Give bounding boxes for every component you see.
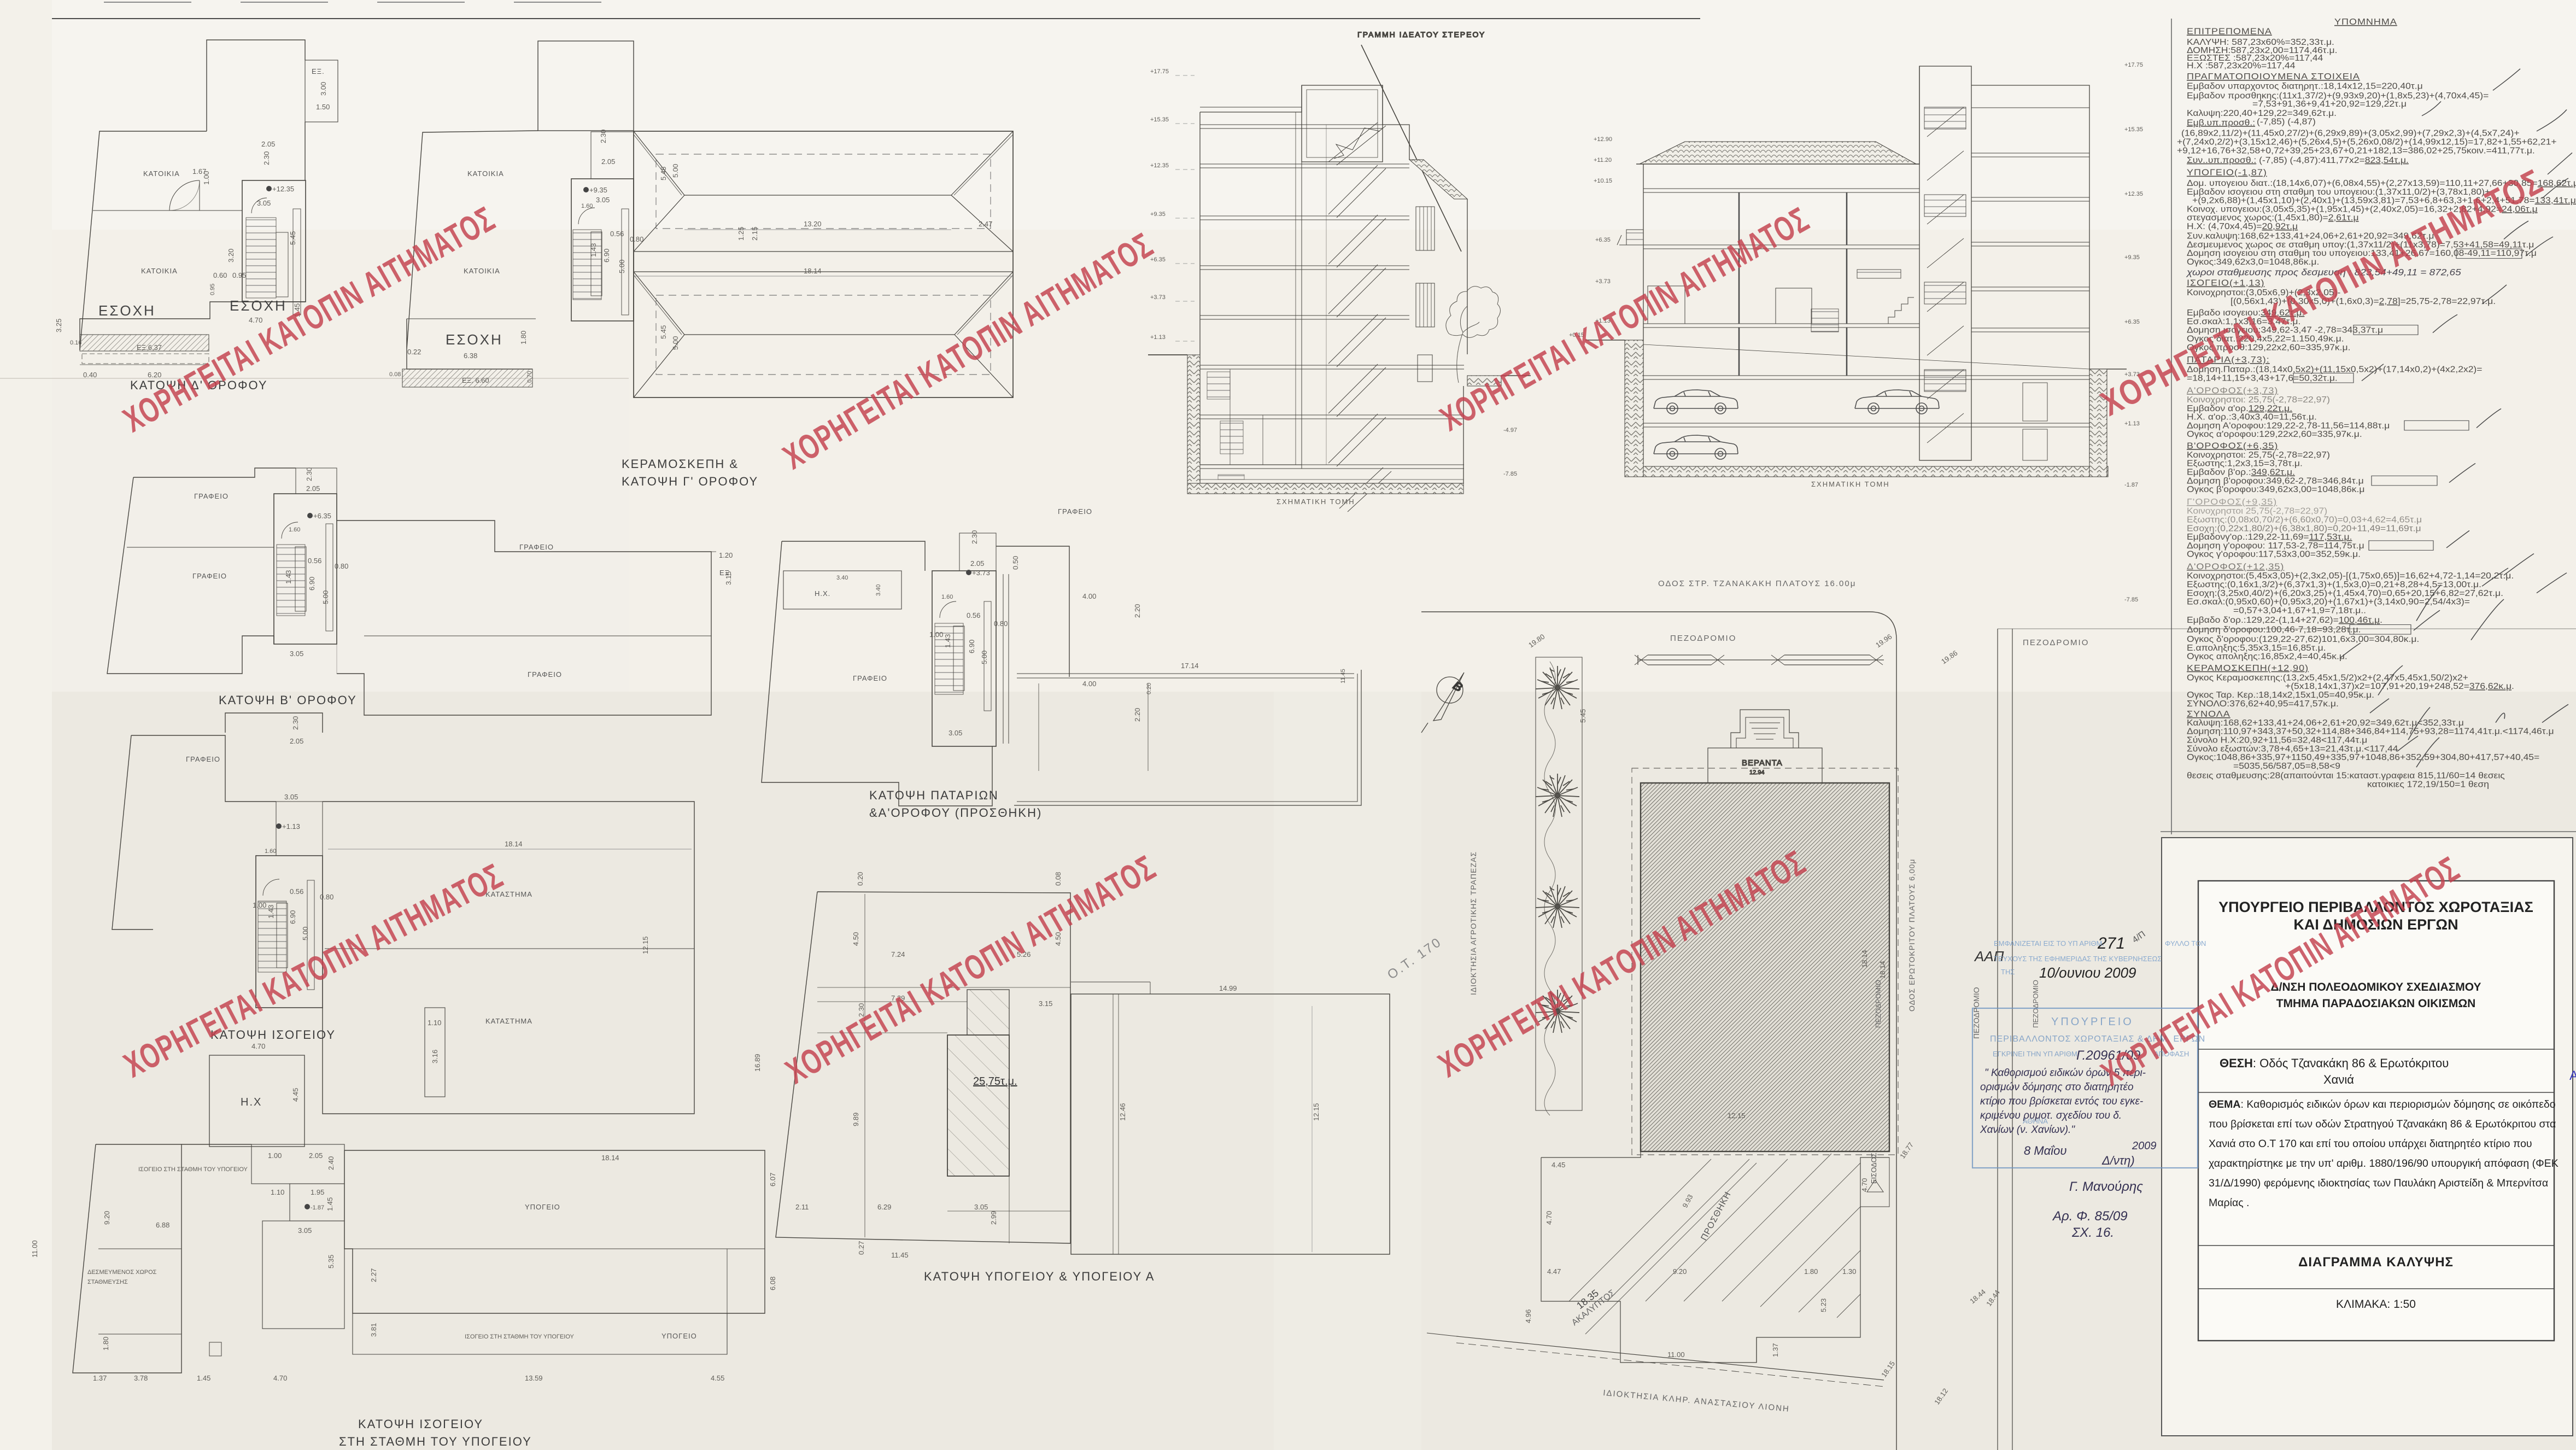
svg-text:ΕΣΟΧΗ: ΕΣΟΧΗ — [98, 302, 156, 319]
svg-text:Εξωστης:1,2x3,15=3,78τ.μ.: Εξωστης:1,2x3,15=3,78τ.μ. — [2187, 459, 2303, 469]
svg-text:ΕΜΦΑΝΙΖΕΤΑΙ ΕΙΣ ΤΟ ΥΠ ΑΡΙΘΜ.: ΕΜΦΑΝΙΖΕΤΑΙ ΕΙΣ ΤΟ ΥΠ ΑΡΙΘΜ. — [1994, 939, 2104, 948]
svg-text:4.00: 4.00 — [1082, 592, 1096, 600]
svg-text:1.00: 1.00 — [268, 1151, 282, 1160]
svg-text:+17.75: +17.75 — [1150, 68, 1169, 75]
svg-text:5.00: 5.00 — [980, 651, 988, 664]
svg-text:ΕΙΣΟΔΟΣ: ΕΙΣΟΔΟΣ — [1870, 1153, 1878, 1184]
svg-text:Εσοχη:(3,25x0,40/2)+(6,20x3,25: Εσοχη:(3,25x0,40/2)+(6,20x3,25)+(1,45x4,… — [2187, 589, 2503, 598]
svg-text:11.00: 11.00 — [31, 1240, 39, 1258]
svg-text:2.05: 2.05 — [261, 140, 275, 148]
svg-text:18.14: 18.14 — [804, 267, 822, 275]
svg-text:6.90: 6.90 — [289, 910, 297, 924]
svg-text:ΟΔΟΣ ΕΡΩΤΟΚΡΙΤΟΥ ΠΛΑΤΟΥΣ 6,: ΟΔΟΣ ΕΡΩΤΟΚΡΙΤΟΥ ΠΛΑΤΟΥΣ 6,00μ — [1907, 859, 1916, 1012]
svg-text:1.37: 1.37 — [1771, 1343, 1779, 1357]
svg-text:ΤΗΣ: ΤΗΣ — [2001, 968, 2015, 976]
svg-text:+9.35: +9.35 — [2124, 254, 2140, 261]
svg-text:1.37: 1.37 — [93, 1374, 107, 1382]
svg-text:Κοινοχρηστοι 25,75(-2,78=22,97: Κοινοχρηστοι 25,75(-2,78=22,97) — [2187, 507, 2327, 516]
svg-text:11.00: 11.00 — [1667, 1350, 1685, 1359]
svg-text:1.30: 1.30 — [1842, 1267, 1856, 1276]
svg-text:5.00: 5.00 — [671, 164, 680, 178]
svg-text:2.30: 2.30 — [970, 530, 979, 544]
svg-text:-7.85: -7.85 — [1503, 471, 1517, 477]
svg-text:+(7,24x0,2/2)+(3,15x12,46)+(5,: +(7,24x0,2/2)+(3,15x12,46)+(5,26x4,5)+(5… — [2177, 137, 2557, 147]
svg-text:στεγασμενος χωρος:(1,45x1,80): στεγασμενος χωρος:(1,45x1,80)=2,61τ.μ — [2187, 213, 2359, 223]
svg-text:3.81: 3.81 — [370, 1323, 378, 1337]
svg-text:ΦΥΛΛΟ ΤΟΝ: ΦΥΛΛΟ ΤΟΝ — [2165, 939, 2206, 948]
svg-text:ΓΡΑΦΕΙΟ: ΓΡΑΦΕΙΟ — [528, 670, 562, 679]
svg-text:-7.85: -7.85 — [2124, 597, 2138, 603]
svg-text:2.20: 2.20 — [1133, 708, 1141, 722]
svg-text:ΣΧΗΜΑΤΙΚΗ ΤΟΜΗ: ΣΧΗΜΑΤΙΚΗ ΤΟΜΗ — [1811, 480, 1890, 488]
svg-text:1.95: 1.95 — [311, 1188, 324, 1196]
svg-text:θεσεις σταθμευσης:28(απαιτούν: θεσεις σταθμευσης:28(απαιτούνται 15:κατα… — [2187, 771, 2505, 780]
svg-text:ΓΡΑΜΜΗ ΙΔΕΑΤΟΥ ΣΤΕΡΕΟΥ: ΓΡΑΜΜΗ ΙΔΕΑΤΟΥ ΣΤΕΡΕΟΥ — [1357, 30, 1485, 39]
svg-text:4.47: 4.47 — [1547, 1267, 1561, 1276]
svg-text:Γ'ΟΡΟΦΟΣ(+9,35): Γ'ΟΡΟΦΟΣ(+9,35) — [2187, 497, 2277, 507]
svg-text:1.60: 1.60 — [581, 203, 593, 209]
svg-text:Χανιά στο Ο.Τ 170 και επί του: Χανιά στο Ο.Τ 170 και επί του οποίου υπά… — [2209, 1138, 2532, 1150]
svg-text:ΕΞ.: ΕΞ. — [719, 569, 733, 577]
svg-text:ΠΕΖΟΔΡΟΜΙΟ: ΠΕΖΟΔΡΟΜΙΟ — [2023, 638, 2089, 647]
svg-text:ΥΠΟΜΝΗΜΑ: ΥΠΟΜΝΗΜΑ — [2334, 17, 2397, 27]
svg-text:ΚΑΤΟΨΗ Β' ΟΡΟΦΟΥ: ΚΑΤΟΨΗ Β' ΟΡΟΦΟΥ — [219, 693, 357, 707]
svg-text:Κοινοχρηστοι:(5,45x3,05)+(2,3x: Κοινοχρηστοι:(5,45x3,05)+(2,3x2,05)-[(1,… — [2187, 571, 2514, 581]
svg-text:9.20: 9.20 — [1673, 1267, 1687, 1276]
svg-text:ΕΣΟΧΗ: ΕΣΟΧΗ — [446, 331, 503, 348]
svg-text:5.45: 5.45 — [289, 231, 297, 245]
svg-text:3.16: 3.16 — [431, 1050, 439, 1063]
svg-text:5.00: 5.00 — [321, 590, 330, 604]
svg-text:ΠΕΖΟΔΡΟΜΙΟ: ΠΕΖΟΔΡΟΜΙΟ — [1670, 634, 1736, 643]
svg-text:+15.35: +15.35 — [1150, 116, 1169, 123]
svg-text:Α'ΟΡΟΦΟΣ(+3,73): Α'ΟΡΟΦΟΣ(+3,73) — [2187, 385, 2278, 395]
svg-text:-4.97: -4.97 — [1503, 427, 1517, 434]
svg-text:2009: 2009 — [2132, 1140, 2157, 1152]
svg-text:1.60: 1.60 — [289, 527, 300, 533]
svg-text:25,75τ.μ.: 25,75τ.μ. — [973, 1075, 1017, 1087]
svg-text:12.46: 12.46 — [1119, 1103, 1127, 1121]
svg-text:ΥΠΟΓΕΙΟ: ΥΠΟΓΕΙΟ — [661, 1332, 697, 1340]
svg-text:0.95: 0.95 — [232, 271, 246, 279]
svg-text:1.20: 1.20 — [719, 551, 733, 559]
svg-text:Δ/ΝΣΗ ΠΟΛΕΟΔΟΜΙΚΟΥ ΣΧΕΔΙΑΣΜΟΥ: Δ/ΝΣΗ ΠΟΛΕΟΔΟΜΙΚΟΥ ΣΧΕΔΙΑΣΜΟΥ — [2271, 981, 2481, 993]
svg-text:ΓΡΑΦΕΙΟ: ΓΡΑΦΕΙΟ — [192, 572, 227, 580]
svg-text:+12.90: +12.90 — [1594, 136, 1612, 143]
svg-text:ΕΞ.: ΕΞ. — [312, 67, 325, 75]
svg-text:5.45: 5.45 — [1579, 709, 1587, 723]
svg-text:3.40: 3.40 — [836, 575, 848, 581]
svg-text:Εξωστης:(0,08x0,70/2)+(6,60x0,: Εξωστης:(0,08x0,70/2)+(6,60x0,70)=0,03+4… — [2187, 515, 2422, 524]
svg-text:ΣΥΝΟΛΑ: ΣΥΝΟΛΑ — [2187, 709, 2230, 719]
svg-text:Κοινοχρηστοι: 25,75(-2,78=22,9: Κοινοχρηστοι: 25,75(-2,78=22,97) — [2187, 395, 2330, 405]
svg-text:Ογκος δ'οροφου:(129,22-27,62): Ογκος δ'οροφου:(129,22-27,62)101,6x3,00=… — [2187, 635, 2419, 644]
svg-text:+9,12+16,76+32,58+0,72+39,25+2: +9,12+16,76+32,58+0,72+39,25+23,67+0,21+… — [2177, 146, 2535, 155]
svg-text:ΕΠΙΤΡΕΠΟΜΕΝΑ: ΕΠΙΤΡΕΠΟΜΕΝΑ — [2187, 27, 2272, 37]
svg-text:+17.75: +17.75 — [2124, 62, 2143, 68]
svg-text:1.25: 1.25 — [737, 227, 745, 241]
svg-text:+15.35: +15.35 — [2124, 126, 2143, 133]
svg-text:+3.73: +3.73 — [1150, 294, 1166, 301]
svg-text:ΚΑΤΟΙΚΙΑ: ΚΑΤΟΙΚΙΑ — [141, 267, 178, 275]
svg-text:3.05: 3.05 — [949, 729, 962, 737]
svg-text:11.45: 11.45 — [1340, 669, 1346, 683]
svg-text:2.20: 2.20 — [1133, 604, 1141, 618]
svg-text:0.80: 0.80 — [994, 619, 1008, 628]
svg-text:4.45: 4.45 — [1552, 1161, 1565, 1169]
svg-text:Εμβαδον ισογειου στη σταθμη το: Εμβαδον ισογειου στη σταθμη του υπογειου… — [2187, 188, 2490, 197]
svg-text:+6.35: +6.35 — [313, 512, 331, 520]
svg-text:31/Δ/1990) φερόμενης ιδιοκτησί: 31/Δ/1990) φερόμενης ιδιοκτησίας των Παυ… — [2209, 1177, 2548, 1189]
svg-text:ΔΕΣΜΕΥΜΕΝΟΣ ΧΩΡΟΣ: ΔΕΣΜΕΥΜΕΝΟΣ ΧΩΡΟΣ — [87, 1269, 157, 1276]
svg-text:2.47: 2.47 — [979, 220, 992, 228]
svg-text:3.15: 3.15 — [1039, 999, 1052, 1008]
svg-text:1.00: 1.00 — [253, 901, 266, 909]
svg-text:+9.35: +9.35 — [1150, 211, 1166, 218]
svg-text:Καλυψη:168,62+133,41+24,06+2,6: Καλυψη:168,62+133,41+24,06+2,61+20,92=34… — [2187, 718, 2464, 728]
svg-text:ΓΡΑΦΕΙΟ: ΓΡΑΦΕΙΟ — [186, 755, 220, 763]
svg-text:9.89: 9.89 — [852, 1113, 860, 1126]
svg-text:2.30: 2.30 — [262, 151, 271, 165]
svg-text:-1.87: -1.87 — [311, 1205, 324, 1211]
svg-text:13.59: 13.59 — [525, 1374, 543, 1382]
svg-text:+3.73: +3.73 — [1595, 278, 1611, 285]
svg-text:ΠΕΖΟΔΡΟΜΙΟ: ΠΕΖΟΔΡΟΜΙΟ — [2031, 980, 2040, 1028]
svg-text:+12.35: +12.35 — [1150, 162, 1169, 169]
svg-text:ΘΕΜΑ: Καθορισμός ειδικών όρων: ΘΕΜΑ: Καθορισμός ειδικών όρων και περιορ… — [2209, 1098, 2556, 1110]
svg-text:Δομηση δ'οροφου:100,46-7,18=9: Δομηση δ'οροφου:100,46-7,18=93,28τ.μ. — [2187, 625, 2361, 634]
svg-text:ΥΠΟΓΕΙΟ: ΥΠΟΓΕΙΟ — [525, 1203, 560, 1211]
svg-text:+12.35: +12.35 — [2124, 191, 2143, 197]
svg-text:ΘΕΣΗ: Οδός Τζανακάκη 86 &: ΘΕΣΗ: Οδός Τζανακάκη 86 & Ερωτόκριτου — [2220, 1056, 2449, 1070]
svg-text:+1.13: +1.13 — [2124, 420, 2140, 427]
svg-text:0.16: 0.16 — [70, 340, 81, 346]
svg-text:Εμβαδον υπαρχοντος διατηρητ.:1: Εμβαδον υπαρχοντος διατηρητ.:18,14x12,15… — [2187, 82, 2423, 91]
svg-text:1.45: 1.45 — [326, 1197, 334, 1211]
svg-text:0.56: 0.56 — [290, 887, 303, 896]
svg-text:ΠΡΑΓΜΑΤΟΠΟΙΟΥΜΕΝΑ ΣΤΟΙΧΕΙΑ: ΠΡΑΓΜΑΤΟΠΟΙΟΥΜΕΝΑ ΣΤΟΙΧΕΙΑ — [2187, 72, 2360, 81]
svg-text:1.00: 1.00 — [929, 630, 943, 639]
svg-text:2.05: 2.05 — [290, 737, 303, 745]
svg-text:ΙΔΙΟΚΤΗΣΙΑ ΑΓΡΟΤΙΚΗΣ ΤΡΑΠΕΖΑΣ: ΙΔΙΟΚΤΗΣΙΑ ΑΓΡΟΤΙΚΗΣ ΤΡΑΠΕΖΑΣ — [1469, 851, 1478, 995]
svg-text:Εμβαδο δ'ορ.:129,22-(1,14+27,: Εμβαδο δ'ορ.:129,22-(1,14+27,62)=100,46τ… — [2187, 616, 2382, 625]
svg-text:ΚΑΤΟΨΗ ΙΣΟΓΕΙΟΥ: ΚΑΤΟΨΗ ΙΣΟΓΕΙΟΥ — [358, 1417, 483, 1431]
svg-text:0.20: 0.20 — [856, 872, 864, 886]
svg-text:Ογκος β'οροφου:349,62x3,00=10: Ογκος β'οροφου:349,62x3,00=1048,86κ.μ — [2187, 485, 2365, 494]
svg-text:Εξωστης:(0,16x1,3/2)+(6,37x1,3: Εξωστης:(0,16x1,3/2)+(6,37x1,3)+(1,5x3,0… — [2187, 580, 2481, 589]
svg-text:Χανιά: Χανιά — [2323, 1073, 2354, 1086]
svg-text:17.14: 17.14 — [1181, 662, 1199, 670]
svg-text:Δομηση β'οροφου:349,62-2,78=3: Δομηση β'οροφου:349,62-2,78=346,84τ.μ — [2187, 476, 2364, 486]
svg-text:4.70: 4.70 — [251, 1042, 265, 1050]
svg-text:Σύνολο Η.Χ:20,92+11,56=32,48<: Σύνολο Η.Χ:20,92+11,56=32,48<117,44τ.μ — [2187, 735, 2367, 745]
svg-text:ΥΠΟΓΕΙΟ(-1,87): ΥΠΟΓΕΙΟ(-1,87) — [2187, 168, 2267, 178]
svg-text:12.15: 12.15 — [641, 936, 649, 954]
svg-text:ΣΧ. 16.: ΣΧ. 16. — [2071, 1225, 2114, 1240]
svg-text:0.08: 0.08 — [1054, 872, 1062, 886]
svg-text:0.50: 0.50 — [1011, 556, 1020, 570]
svg-text:4.00: 4.00 — [1082, 680, 1096, 688]
svg-text:1.50: 1.50 — [316, 103, 330, 111]
svg-text:2.05: 2.05 — [970, 559, 984, 568]
svg-text:1.10: 1.10 — [428, 1019, 441, 1027]
svg-text:3.25: 3.25 — [55, 319, 63, 332]
svg-text:18.14: 18.14 — [1860, 950, 1869, 968]
svg-text:Καλυψη:220,40+129,22=349,62τ.μ: Καλυψη:220,40+129,22=349,62τ.μ. — [2187, 109, 2337, 118]
svg-text:6.90: 6.90 — [308, 577, 316, 590]
svg-text:1.80: 1.80 — [102, 1337, 110, 1350]
svg-text:ΔΙΑΓΡΑΜΜΑ ΚΑΛΥΨΗΣ: ΔΙΑΓΡΑΜΜΑ ΚΑΛΥΨΗΣ — [2298, 1255, 2454, 1270]
svg-text:5.45: 5.45 — [659, 167, 668, 180]
svg-text:1.43: 1.43 — [589, 243, 598, 257]
svg-text:4.70: 4.70 — [249, 316, 262, 324]
svg-text:Ογκος:349,62x3,0=1048,86κ.μ.: Ογκος:349,62x3,0=1048,86κ.μ. — [2187, 258, 2319, 267]
svg-text:ΤΕΥΧΟΥΣ ΤΗΣ ΕΦΗΜΕΡΙΔΑΣ ΤΗΣ ΚΥΒ: ΤΕΥΧΟΥΣ ΤΗΣ ΕΦΗΜΕΡΙΔΑΣ ΤΗΣ ΚΥΒΕΡΝΗΣΕΩΣ — [1994, 955, 2162, 963]
svg-text:=7,53+91,36+9,41+20,92=129,22τ: =7,53+91,36+9,41+20,92=129,22τ.μ — [2252, 100, 2407, 109]
svg-text:ΤΜΗΜΑ ΠΑΡΑΔΟΣΙΑΚΩΝ ΟΙΚΙΣΜΩΝ: ΤΜΗΜΑ ΠΑΡΑΔΟΣΙΑΚΩΝ ΟΙΚΙΣΜΩΝ — [2276, 997, 2476, 1010]
svg-text:Ογκος α'οροφου:129,22x2,60=33: Ογκος α'οροφου:129,22x2,60=335,97κ.μ. — [2187, 430, 2362, 439]
svg-text:5.00: 5.00 — [618, 260, 626, 273]
svg-text:0.40: 0.40 — [83, 371, 97, 379]
svg-text:κριμένου ρυμοτ. σχεδίου του δ.: κριμένου ρυμοτ. σχεδίου του δ. — [1980, 1110, 2122, 1121]
svg-text:0.22: 0.22 — [407, 348, 421, 356]
svg-text:10/ουνιου 2009: 10/ουνιου 2009 — [2039, 964, 2136, 981]
svg-text:+11.20: +11.20 — [1594, 157, 1612, 163]
svg-text:ΚΑΤΟΨΗ ΠΑΤΑΡΙΩΝ: ΚΑΤΟΨΗ ΠΑΤΑΡΙΩΝ — [869, 788, 999, 802]
svg-text:Η.Χ: (4,70x4,45)=20,92τ.μ: Η.Χ: (4,70x4,45)=20,92τ.μ — [2187, 222, 2298, 231]
svg-text:13.20: 13.20 — [804, 220, 822, 228]
svg-text:Δ/ντη): Δ/ντη) — [2101, 1154, 2135, 1167]
svg-text:Αρ. Φ. 85/09: Αρ. Φ. 85/09 — [2052, 1209, 2128, 1224]
svg-text:4.70: 4.70 — [1545, 1211, 1553, 1225]
svg-text:Συν..υπ.προσθ.: (-7,85) (-4,87: Συν..υπ.προσθ.: (-7,85) (-4,87):411,77x2… — [2187, 156, 2409, 165]
svg-text:ΣΥΝΟΛΟ:376,62+40,95=417,57κ.μ.: ΣΥΝΟΛΟ:376,62+40,95=417,57κ.μ. — [2187, 699, 2339, 709]
svg-text:+1.13: +1.13 — [282, 822, 300, 831]
svg-text:14.99: 14.99 — [1219, 984, 1237, 992]
svg-text:Η.Χ.: Η.Χ. — [815, 589, 830, 598]
svg-text:3.05: 3.05 — [974, 1203, 988, 1211]
svg-text:Ογκος γ'οροφου:117,53x3,00=35: Ογκος γ'οροφου:117,53x3,00=352,59κ.μ. — [2187, 550, 2361, 559]
svg-text:4.45: 4.45 — [291, 1088, 300, 1102]
svg-text:ΟΔΟΣ ΣΤΡ. ΤΖΑΝΑΚΑΚΗ ΠΛΑΤΟΥΣ: ΟΔΟΣ ΣΤΡ. ΤΖΑΝΑΚΑΚΗ ΠΛΑΤΟΥΣ 16.00μ — [1658, 579, 1856, 588]
svg-text:Ογκος αποληξης:16,85x2,4=40,4: Ογκος αποληξης:16,85x2,4=40,45κ.μ. — [2187, 652, 2347, 662]
svg-text:3.05: 3.05 — [596, 196, 610, 204]
svg-text:0.27: 0.27 — [857, 1241, 865, 1255]
svg-text:ΙΣΟΓΕΙΟ(+1,13): ΙΣΟΓΕΙΟ(+1,13) — [2187, 278, 2264, 288]
svg-text:ΙΣΟΓΕΙΟ ΣΤΗ ΣΤΑΘΜΗ ΤΟΥ ΥΠΟΓΕΙΟ: ΙΣΟΓΕΙΟ ΣΤΗ ΣΤΑΘΜΗ ΤΟΥ ΥΠΟΓΕΙΟΥ — [138, 1166, 248, 1173]
svg-text:2.05: 2.05 — [601, 157, 615, 166]
svg-text:ΓΡΑΦΕΙΟ: ΓΡΑΦΕΙΟ — [1058, 507, 1092, 516]
svg-text:ΣΤΗ ΣΤΑΘΜΗ ΤΟΥ ΥΠΟΓΕΙΟΥ: ΣΤΗ ΣΤΑΘΜΗ ΤΟΥ ΥΠΟΓΕΙΟΥ — [339, 1435, 532, 1448]
svg-text:+12.35: +12.35 — [272, 185, 294, 193]
svg-text:ΥΠΟΥΡΓΕΙΟ: ΥΠΟΥΡΓΕΙΟ — [2051, 1016, 2134, 1028]
svg-text:ΣΤΑΘΜΕΥΣΗΣ: ΣΤΑΘΜΕΥΣΗΣ — [87, 1279, 128, 1285]
svg-text:Εμβαδον α'ορ.129,22τ.μ.: Εμβαδον α'ορ.129,22τ.μ. — [2187, 404, 2292, 413]
svg-text:12.15: 12.15 — [1728, 1112, 1746, 1120]
svg-text:ΠΕΖΟΔΡΟΜΙΟ: ΠΕΖΟΔΡΟΜΙΟ — [1874, 980, 1882, 1028]
svg-text:ΚΛΙΜΑΚΑ: 1:50: ΚΛΙΜΑΚΑ: 1:50 — [2336, 1298, 2416, 1311]
svg-text:ΓΡΑΦΕΙΟ: ΓΡΑΦΕΙΟ — [853, 674, 887, 682]
svg-text:ΚΕΡΑΜΟΣΚΕΠΗ &: ΚΕΡΑΜΟΣΚΕΠΗ & — [622, 457, 739, 471]
svg-text:0.95: 0.95 — [209, 284, 216, 295]
svg-text:=0,57+3,04+1,67+1,9=7,18τ.μ..: =0,57+3,04+1,67+1,9=7,18τ.μ.. — [2233, 606, 2366, 615]
svg-text:0.80: 0.80 — [320, 893, 333, 901]
svg-text:+3.73: +3.73 — [972, 569, 990, 577]
svg-text:ΓΡΑΦΕΙΟ: ΓΡΑΦΕΙΟ — [194, 492, 229, 500]
svg-text:9.20: 9.20 — [103, 1211, 111, 1225]
svg-text:Ογκος Κεραμοσκεπης:(13,2x5,45: Ογκος Κεραμοσκεπης:(13,2x5,45x1,5/2)x2+(… — [2187, 673, 2468, 682]
svg-text:Χανίων (ν. Χανίων).": Χανίων (ν. Χανίων)." — [1980, 1124, 2075, 1136]
svg-text:Εσοχη:(0,22x1,80/2)+(6,38x1,80: Εσοχη:(0,22x1,80/2)+(6,38x1,80)=0,20+11,… — [2187, 524, 2421, 533]
svg-text:0.80: 0.80 — [335, 562, 348, 570]
svg-text:ΓΡΑΦΕΙΟ: ΓΡΑΦΕΙΟ — [519, 543, 554, 551]
svg-text:1.43: 1.43 — [284, 570, 292, 584]
svg-text:16.89: 16.89 — [753, 1054, 762, 1072]
svg-text:+(5x18,14x1,37)x2=107,91+20,19: +(5x18,14x1,37)x2=107,91+20,19+248,52=37… — [2285, 682, 2514, 691]
svg-text:ΕΞ.6.37: ΕΞ.6.37 — [137, 343, 162, 352]
svg-text:κτίριο που βρίσκεται εντός του: κτίριο που βρίσκεται εντός του εγκε- — [1980, 1096, 2143, 1107]
svg-text:2.40: 2.40 — [327, 1156, 335, 1170]
svg-text:1.00: 1.00 — [202, 171, 210, 185]
svg-text:1.80: 1.80 — [519, 331, 528, 344]
svg-text:=5035,56/587,05=8,58<9: =5035,56/587,05=8,58<9 — [2233, 762, 2340, 771]
svg-text:1.45: 1.45 — [197, 1374, 210, 1382]
svg-text:Η.Χ. α'ορ.:3,40x3,40=11,56τ.μ: Η.Χ. α'ορ.:3,40x3,40=11,56τ.μ. — [2187, 413, 2317, 422]
svg-text:+9.35: +9.35 — [589, 186, 607, 194]
svg-text:12.94: 12.94 — [1749, 769, 1765, 776]
svg-text:2.30: 2.30 — [291, 716, 300, 730]
svg-text:5.45: 5.45 — [659, 325, 668, 339]
svg-text:11.45: 11.45 — [891, 1251, 909, 1259]
svg-text:2.30: 2.30 — [305, 467, 313, 481]
svg-text:Κοινοχρηστοι: 25,75(-2,78=22,9: Κοινοχρηστοι: 25,75(-2,78=22,97) — [2187, 451, 2330, 460]
svg-text:ΕΓΚΡΙΝΕΙ ΤΗΝ ΥΠ ΑΡΙΘΜ.: ΕΓΚΡΙΝΕΙ ΤΗΝ ΥΠ ΑΡΙΘΜ. — [1993, 1050, 2079, 1058]
svg-text:0.60: 0.60 — [213, 271, 227, 279]
svg-text:Δομηση.Παταρ.:(18,14x0,5x2)+(1: Δομηση.Παταρ.:(18,14x0,5x2)+(11,15x0,5x2… — [2187, 365, 2482, 375]
svg-text:Ε.αποληξης:5,35x3,15=16,85τ.μ.: Ε.αποληξης:5,35x3,15=16,85τ.μ. — [2187, 644, 2326, 653]
svg-text:0.80: 0.80 — [630, 235, 643, 243]
svg-text:0.56: 0.56 — [308, 557, 321, 565]
svg-text:ΒΕΡΑΝΤΑ: ΒΕΡΑΝΤΑ — [1742, 758, 1783, 768]
svg-text:&Α'ΟΡΟΦΟΥ (ΠΡΟΣΘΗΚΗ): &Α'ΟΡΟΦΟΥ (ΠΡΟΣΘΗΚΗ) — [869, 806, 1042, 820]
svg-text:18.14: 18.14 — [1878, 961, 1887, 979]
svg-text:Δεσμευμενος χωρος σε σταθμη: Δεσμευμενος χωρος σε σταθμη υπογ:(1,37x1… — [2187, 240, 2534, 249]
svg-text:3.05: 3.05 — [298, 1226, 312, 1235]
svg-text:0.20: 0.20 — [1146, 683, 1152, 694]
svg-text:Ογκος:1048,86+335,97+1150,49+3: Ογκος:1048,86+335,97+1150,49+335,97+1048… — [2187, 753, 2539, 762]
svg-text:2.05: 2.05 — [309, 1151, 323, 1160]
svg-text:12.15: 12.15 — [1312, 1103, 1320, 1121]
svg-text:Δομηση γ'οροφου: 117,53-2,78: Δομηση γ'οροφου: 117,53-2,78=114,75τ.μ — [2187, 541, 2364, 551]
svg-text:18.14: 18.14 — [505, 840, 523, 848]
svg-text:0.70: 0.70 — [526, 371, 533, 383]
svg-text:Μαρίας .: Μαρίας . — [2209, 1197, 2249, 1209]
svg-text:Η.Χ :587,23x20%=117,44: Η.Χ :587,23x20%=117,44 — [2187, 61, 2295, 71]
svg-text:=18,14+11,15+3,43+17,6=50,32τ.: =18,14+11,15+3,43+17,6=50,32τ.μ. — [2187, 373, 2338, 383]
svg-text:6.08: 6.08 — [769, 1277, 777, 1290]
svg-text:8 Μαΐου: 8 Μαΐου — [2024, 1144, 2066, 1157]
svg-text:ΚΑΤΟΨΗ Γ' ΟΡΟΦΟΥ: ΚΑΤΟΨΗ Γ' ΟΡΟΦΟΥ — [622, 475, 758, 488]
svg-text:6.07: 6.07 — [769, 1173, 777, 1186]
svg-text:Α: Α — [2569, 1068, 2576, 1083]
svg-text:1.43: 1.43 — [267, 905, 275, 919]
svg-text:2.99: 2.99 — [990, 1211, 998, 1225]
svg-text:Εμβαδον β'ορ.:349,62τ.μ.: Εμβαδον β'ορ.:349,62τ.μ. — [2187, 468, 2295, 477]
svg-text:Δομηση Α'οροφου:129,22-2,78-1: Δομηση Α'οροφου:129,22-2,78-11,56=114,88… — [2187, 421, 2390, 430]
svg-text:ΚΑΤΟΨΗ ΥΠΟΓΕΙΟΥ & ΥΠΟΓΕΙΟΥ Α: ΚΑΤΟΨΗ ΥΠΟΓΕΙΟΥ & ΥΠΟΓΕΙΟΥ Α — [924, 1270, 1155, 1283]
svg-text:ΠΕΖΟΔΡΟΜΙΟ: ΠΕΖΟΔΡΟΜΙΟ — [1972, 987, 1981, 1039]
svg-text:6.90: 6.90 — [968, 640, 976, 653]
svg-text:ΚΑΤΟΙΚΙΑ: ΚΑΤΟΙΚΙΑ — [464, 267, 500, 275]
svg-text:1.60: 1.60 — [265, 848, 276, 855]
svg-text:Δομηση:110,97+343,37+50,32+114: Δομηση:110,97+343,37+50,32+114,88+346,84… — [2187, 727, 2554, 736]
svg-text:1.43: 1.43 — [944, 634, 952, 648]
svg-text:2.15: 2.15 — [751, 227, 759, 241]
svg-text:4.70: 4.70 — [1860, 1178, 1869, 1192]
svg-text:+6.35: +6.35 — [1595, 237, 1611, 243]
svg-text:2.11: 2.11 — [795, 1203, 809, 1211]
svg-text:Γ. Μανούρης: Γ. Μανούρης — [2069, 1179, 2143, 1194]
svg-text:3.05: 3.05 — [284, 793, 298, 801]
svg-text:Εμβαδονγ'ορ.:129,22-11,69=117,: Εμβαδονγ'ορ.:129,22-11,69=117,53τ.μ. — [2187, 533, 2352, 542]
svg-text:4.50: 4.50 — [852, 932, 860, 946]
svg-text:4.70: 4.70 — [273, 1374, 287, 1382]
svg-text:3.00: 3.00 — [319, 82, 327, 96]
svg-text:1.60: 1.60 — [941, 594, 953, 600]
svg-text:6.38: 6.38 — [464, 352, 477, 360]
svg-text:Σύνολο εξωστών:3,78+4,65+13=2: Σύνολο εξωστών:3,78+4,65+13=21,43τ.μ.<11… — [2187, 744, 2398, 753]
svg-text:(16,89x2,11/2)+(11,45x0,27/2)+: (16,89x2,11/2)+(11,45x0,27/2)+(6,29x9,89… — [2181, 129, 2520, 138]
svg-text:Η.Χ: Η.Χ — [241, 1096, 262, 1108]
svg-text:+10.15: +10.15 — [1594, 178, 1612, 184]
svg-text:2.27: 2.27 — [370, 1268, 378, 1282]
svg-text:3.40: 3.40 — [875, 584, 882, 596]
svg-text:6.20: 6.20 — [148, 371, 161, 379]
svg-text:(-7,85) (-4,87): (-7,85) (-4,87) — [2257, 118, 2316, 127]
svg-text:2.05: 2.05 — [306, 484, 320, 493]
svg-text:+6.35: +6.35 — [2124, 319, 2140, 325]
svg-text:3.05: 3.05 — [290, 650, 303, 658]
svg-text:χαρακτηρίστηκε με την υπ' αριθ: χαρακτηρίστηκε με την υπ' αριθμ. 1880/19… — [2209, 1157, 2559, 1170]
svg-text:0.56: 0.56 — [610, 230, 624, 238]
svg-text:5.23: 5.23 — [1819, 1299, 1828, 1312]
svg-text:6.29: 6.29 — [877, 1203, 891, 1211]
svg-text:ΙΣΟΓΕΙΟ ΣΤΗ ΣΤΑΘΜΗ ΤΟΥ ΥΠΟΓΕΙΟ: ΙΣΟΓΕΙΟ ΣΤΗ ΣΤΑΘΜΗ ΤΟΥ ΥΠΟΓΕΙΟΥ — [465, 1334, 575, 1340]
svg-text:18.14: 18.14 — [601, 1154, 619, 1162]
svg-text:που βρίσκεται επί των οδών Στ: που βρίσκεται επί των οδών Στρατηγού Τζα… — [2209, 1118, 2556, 1130]
svg-text:2.30: 2.30 — [599, 130, 607, 143]
svg-text:Ογκος Ταρ. Κερ.:18,14x2,15x1: Ογκος Ταρ. Κερ.:18,14x2,15x1,05=40,95κ.μ… — [2187, 691, 2374, 700]
svg-text:6.90: 6.90 — [602, 249, 611, 262]
svg-text:0.08: 0.08 — [389, 371, 401, 378]
svg-text:5.00: 5.00 — [671, 336, 680, 350]
svg-text:-1.87: -1.87 — [2124, 482, 2138, 488]
svg-text:ΕΣΟΧΗ: ΕΣΟΧΗ — [230, 297, 287, 314]
svg-text:ΚΑΤΟΙΚΙΑ: ΚΑΤΟΙΚΙΑ — [467, 169, 504, 178]
svg-text:6.88: 6.88 — [156, 1221, 169, 1229]
svg-text:ΚΕΡΑΜΟΣΚΕΠΗ(+12,90): ΚΕΡΑΜΟΣΚΕΠΗ(+12,90) — [2187, 663, 2309, 673]
svg-text:1.10: 1.10 — [271, 1188, 284, 1196]
svg-text:5.35: 5.35 — [327, 1255, 335, 1268]
svg-text:Β'ΟΡΟΦΟΣ(+6,35): Β'ΟΡΟΦΟΣ(+6,35) — [2187, 441, 2278, 451]
svg-text:Δ'ΟΡΟΦΟΣ(+12,35): Δ'ΟΡΟΦΟΣ(+12,35) — [2187, 562, 2284, 572]
svg-text:0.56: 0.56 — [967, 611, 980, 619]
svg-text:ΚΑΤΑΣΤΗΜΑ: ΚΑΤΑΣΤΗΜΑ — [485, 1017, 532, 1025]
svg-text:7.24: 7.24 — [891, 950, 905, 958]
svg-text:ΣΧΗΜΑΤΙΚΗ ΤΟΜΗ: ΣΧΗΜΑΤΙΚΗ ΤΟΜΗ — [1277, 498, 1355, 506]
svg-text:ΚΑΤΟΙΚΙΑ: ΚΑΤΟΙΚΙΑ — [143, 169, 180, 178]
svg-text:3.05: 3.05 — [257, 199, 271, 207]
